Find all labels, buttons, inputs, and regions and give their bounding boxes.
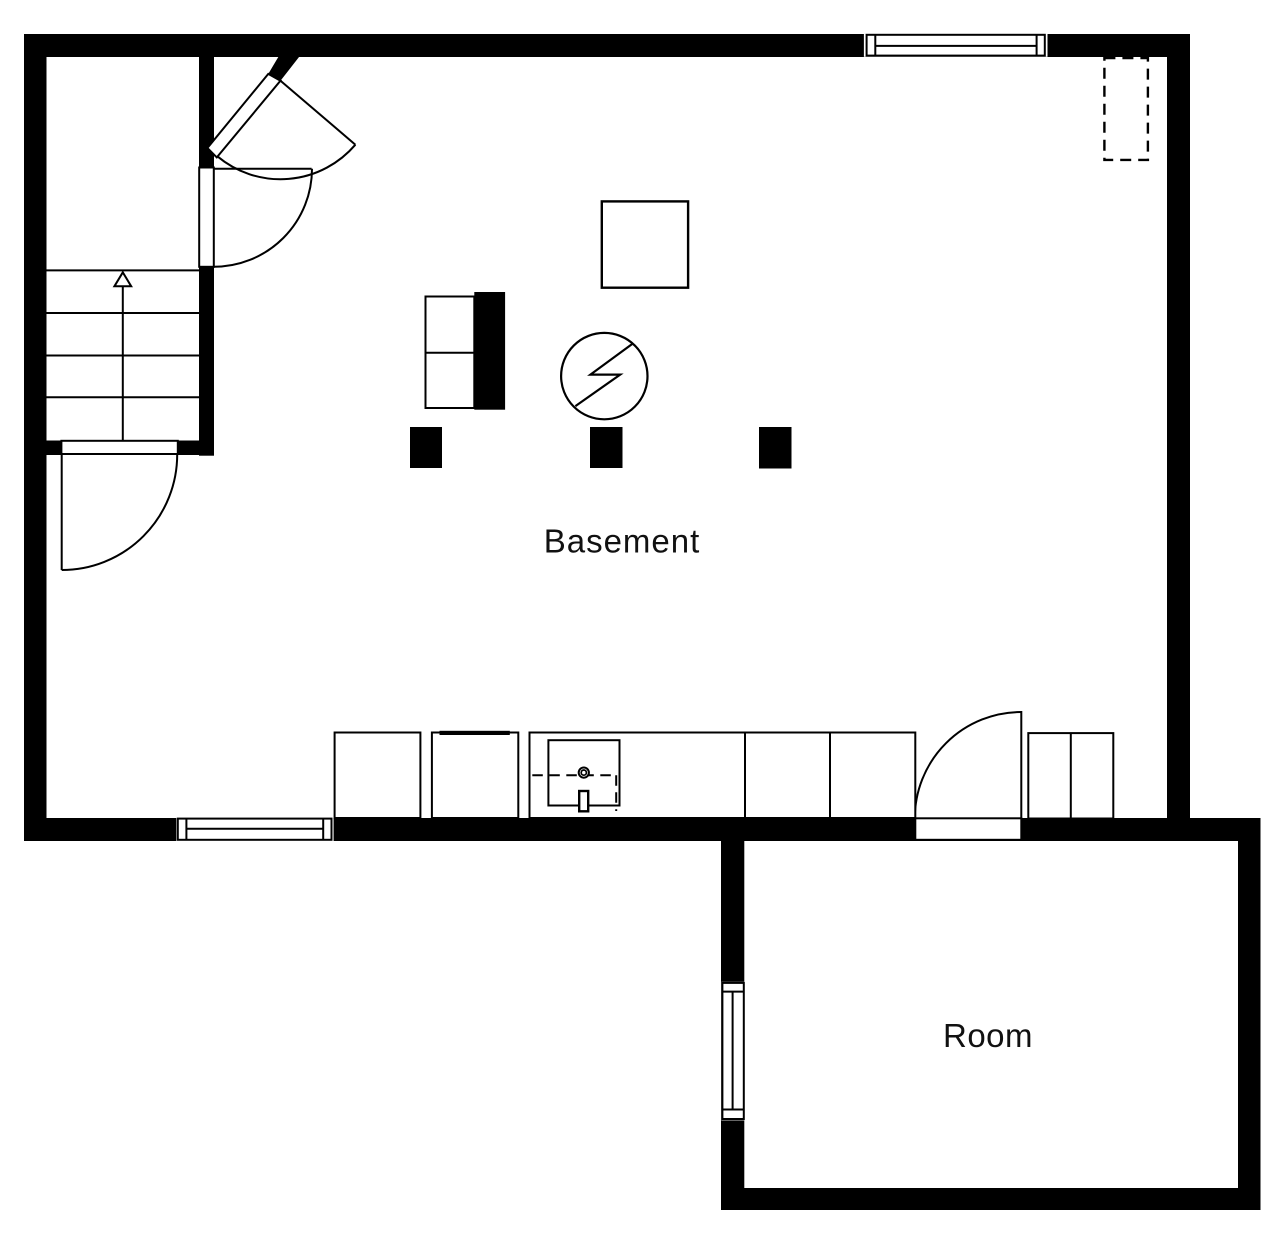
svg-text:Basement: Basement <box>544 523 701 560</box>
svg-text:Room: Room <box>943 1017 1033 1054</box>
